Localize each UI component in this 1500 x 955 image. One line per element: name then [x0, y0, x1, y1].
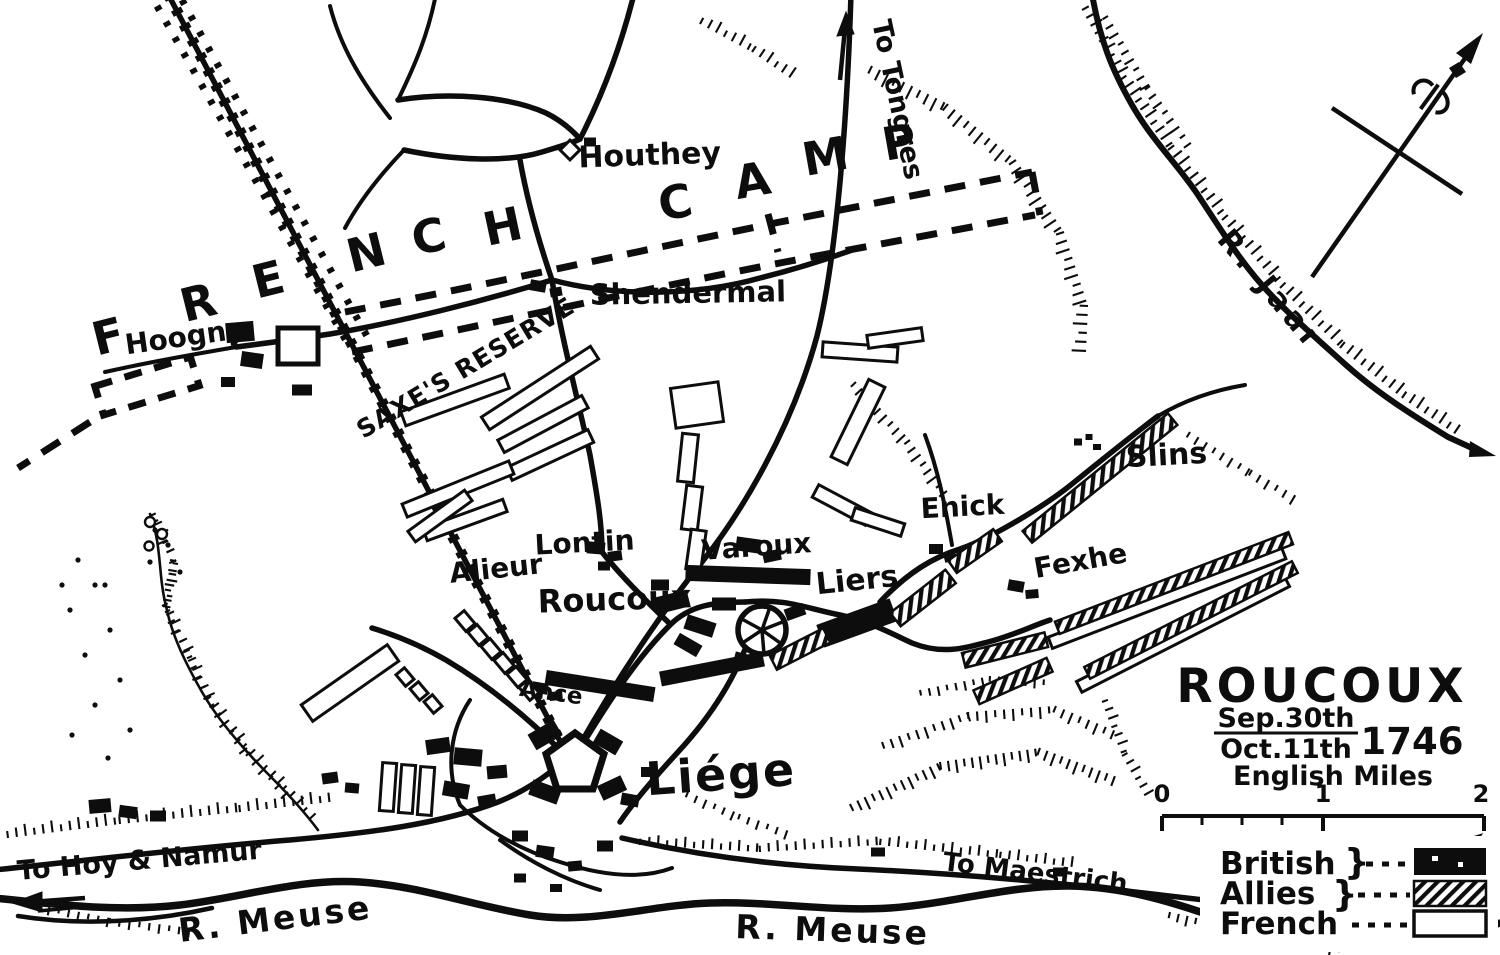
hachure-tick: [167, 596, 173, 597]
marsh-dot: [165, 542, 170, 547]
roucoux-battle-map: F R E N C H C A M P Houthey Shendermal S…: [0, 0, 1500, 955]
hachure-tick: [200, 809, 201, 816]
hachure-tick: [51, 821, 52, 833]
label-slins: Slins: [1125, 436, 1208, 475]
hachure-tick: [149, 923, 150, 931]
label-lontin: Lontin: [534, 523, 636, 561]
label-r-meuse-east: R. Meuse: [735, 907, 931, 953]
hachure-tick: [712, 838, 713, 849]
scale-label-mid: 1: [1315, 780, 1332, 808]
hachure-tick: [328, 793, 329, 802]
hachure-tick: [898, 836, 899, 847]
hachure-tick: [995, 754, 996, 764]
legend-swatch-allies: [1414, 881, 1486, 906]
hachure-tick: [165, 590, 171, 591]
marsh-dot: [147, 559, 152, 564]
hachure-tick: [1031, 708, 1032, 717]
battle-date-first: Sep.30th: [1217, 703, 1354, 734]
village-block: [568, 860, 583, 871]
village-block: [712, 598, 736, 611]
village-block: [345, 782, 360, 793]
hachure-tick: [61, 824, 62, 831]
hachure-tick: [1195, 918, 1196, 924]
hachure-tick: [320, 796, 321, 803]
hachure-tick: [1040, 707, 1041, 719]
legend: British } Allies } French: [1220, 842, 1486, 942]
hachure-tick: [685, 837, 686, 848]
village-block: [598, 562, 610, 571]
hachure-tick: [929, 688, 930, 695]
hachure-tick: [209, 806, 210, 815]
label-houthey: Houthey: [578, 136, 722, 176]
hoogny-courtyard: [278, 328, 318, 364]
french-unit-bar: [681, 485, 702, 531]
french-unit-bar: [417, 767, 434, 816]
marsh-dot: [82, 652, 87, 657]
village-block: [321, 771, 338, 784]
hachure-tick: [925, 839, 926, 850]
liers-village-wheel: [738, 606, 786, 654]
marsh-dot: [117, 677, 122, 682]
village-block: [150, 811, 166, 822]
village-block: [88, 798, 111, 814]
hachure-tick: [68, 910, 69, 917]
camp-letter: M: [798, 126, 852, 187]
marsh-dot: [105, 755, 110, 760]
hachure-tick: [235, 803, 236, 812]
hachure-tick: [34, 828, 35, 835]
hachure-tick: [24, 824, 25, 836]
hachure-tick: [7, 831, 8, 838]
village-block: [550, 884, 562, 892]
hachure-tick: [973, 679, 974, 684]
legend-swatch-british-texture: [1432, 856, 1438, 861]
village-block: [1025, 589, 1039, 599]
hachure-tick: [190, 805, 191, 817]
hachure-tick: [889, 837, 890, 846]
hachure-tick: [1013, 709, 1014, 721]
hachure-tick: [16, 827, 17, 836]
village-block: [512, 831, 528, 842]
hachure-tick: [158, 924, 159, 934]
hachure-tick: [78, 817, 79, 829]
village-block: [240, 351, 264, 369]
legend-swatch-british: [1414, 848, 1486, 875]
label-liege: Liége: [644, 742, 798, 806]
village-block: [1093, 444, 1101, 450]
village-block: [929, 544, 943, 554]
village-block: [118, 805, 137, 819]
stream-head-tuft: [145, 517, 155, 527]
hachure-tick: [88, 914, 89, 919]
hachure-tick: [916, 840, 917, 849]
hachure-tick: [69, 821, 70, 830]
hachure-tick: [114, 818, 115, 825]
hachure-tick: [934, 845, 935, 851]
marsh-dot: [92, 582, 97, 587]
village-block: [514, 874, 526, 883]
hachure-tick: [1019, 751, 1020, 761]
marsh-dot: [102, 582, 107, 587]
hachure-tick: [986, 711, 987, 723]
hachure-tick: [146, 814, 147, 821]
hachure-tick: [275, 799, 276, 808]
hachure-tick: [940, 762, 941, 770]
battle-year: 1746: [1361, 720, 1464, 763]
hachure-tick: [946, 685, 947, 690]
marsh-dot: [107, 627, 112, 632]
hachure-tick: [88, 821, 89, 828]
scale-caption: English Miles: [1233, 761, 1433, 792]
marsh-dot: [59, 582, 64, 587]
hachure-tick: [804, 839, 805, 850]
stream-head-tuft: [145, 542, 154, 551]
marsh-dot: [152, 527, 157, 532]
legend-swatch-french: [1414, 911, 1486, 936]
hachure-tick: [988, 755, 989, 763]
marsh-dot: [177, 569, 182, 574]
label-enick: Enick: [920, 488, 1007, 525]
hachure-tick: [1073, 323, 1087, 324]
village-block: [1086, 434, 1093, 440]
hachure-tick: [1072, 350, 1086, 351]
hachure-tick: [169, 925, 170, 931]
hachure-tick: [169, 574, 176, 575]
hachure-tick: [777, 840, 778, 851]
hachure-tick: [858, 835, 859, 846]
hachure-tick: [172, 563, 178, 564]
hachure-tick: [227, 806, 228, 813]
stream-head-tuft: [157, 529, 167, 539]
hachure-tick: [173, 812, 174, 819]
hachure-tick: [1004, 710, 1005, 719]
legend-swatch-british-texture: [1458, 862, 1463, 867]
map-canvas: F R E N C H C A M P Houthey Shendermal S…: [0, 0, 1500, 955]
hachure-tick: [168, 570, 176, 571]
village-block: [597, 841, 613, 852]
scale-label-start: 0: [1154, 780, 1171, 808]
village-block: [1074, 439, 1082, 446]
french-unit-bar: [398, 765, 415, 814]
marsh-dot: [69, 732, 74, 737]
legend-label-french: French: [1220, 906, 1338, 942]
hachure-tick: [948, 761, 949, 771]
hachure-tick: [1011, 752, 1012, 760]
hachure-tick: [977, 711, 978, 720]
village-block: [486, 765, 507, 780]
french-unit-bar: [379, 763, 396, 812]
scale-label-end: 2: [1473, 780, 1490, 808]
village-block: [453, 747, 482, 766]
marsh-dot: [67, 607, 72, 612]
hachure-tick: [257, 798, 258, 810]
hachure-tick: [831, 837, 832, 848]
french-unit-bar: [678, 433, 699, 482]
hachure-tick: [43, 824, 44, 833]
french-unit-bar: [670, 382, 723, 428]
hachure-tick: [139, 922, 140, 928]
hachure-tick: [920, 690, 921, 695]
hachure-tick: [266, 802, 267, 809]
hachure-tick: [982, 678, 983, 685]
paper-background: [0, 0, 1500, 955]
hachure-tick: [119, 817, 120, 824]
hachure-tick: [217, 802, 218, 814]
hachure-tick: [248, 802, 249, 811]
hachure-tick: [96, 817, 97, 826]
hachure-tick: [739, 840, 740, 851]
village-block: [535, 845, 554, 859]
hachure-tick: [239, 805, 240, 812]
village-block: [871, 848, 885, 857]
marsh-dot: [75, 557, 80, 562]
hachure-tick: [1169, 912, 1170, 918]
label-roucoux-village: Roucoux: [537, 577, 692, 620]
hachure-tick: [964, 759, 965, 767]
hachure-tick: [105, 814, 106, 826]
hachure-tick: [880, 839, 881, 845]
hachure-tick: [310, 792, 311, 804]
hachure-tick: [955, 683, 956, 690]
hachure-tick: [972, 758, 973, 768]
marsh-dot: [127, 727, 132, 732]
village-block: [221, 377, 235, 387]
marsh-dot: [92, 702, 97, 707]
hachure-tick: [1035, 749, 1036, 757]
label-shendermal: Shendermal: [589, 274, 786, 311]
village-block: [292, 385, 312, 396]
hachure-tick: [182, 808, 183, 817]
hachure-tick: [907, 842, 908, 848]
